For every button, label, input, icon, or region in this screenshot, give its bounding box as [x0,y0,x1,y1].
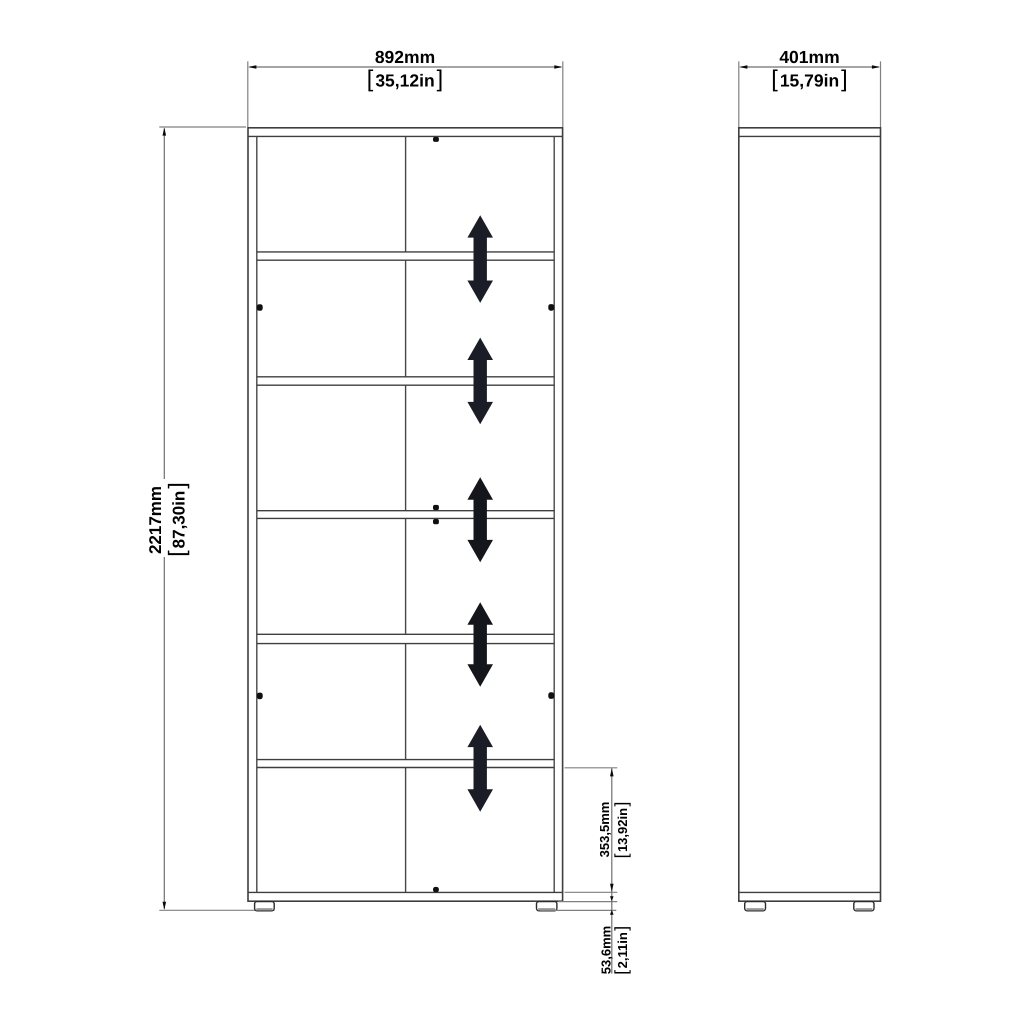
svg-text:401mm: 401mm [779,47,839,67]
svg-text:53,6mm: 53,6mm [598,926,613,974]
svg-text:2217mm: 2217mm [146,486,165,554]
svg-text:892mm: 892mm [375,47,435,67]
svg-text:353,5mm: 353,5mm [597,802,612,858]
